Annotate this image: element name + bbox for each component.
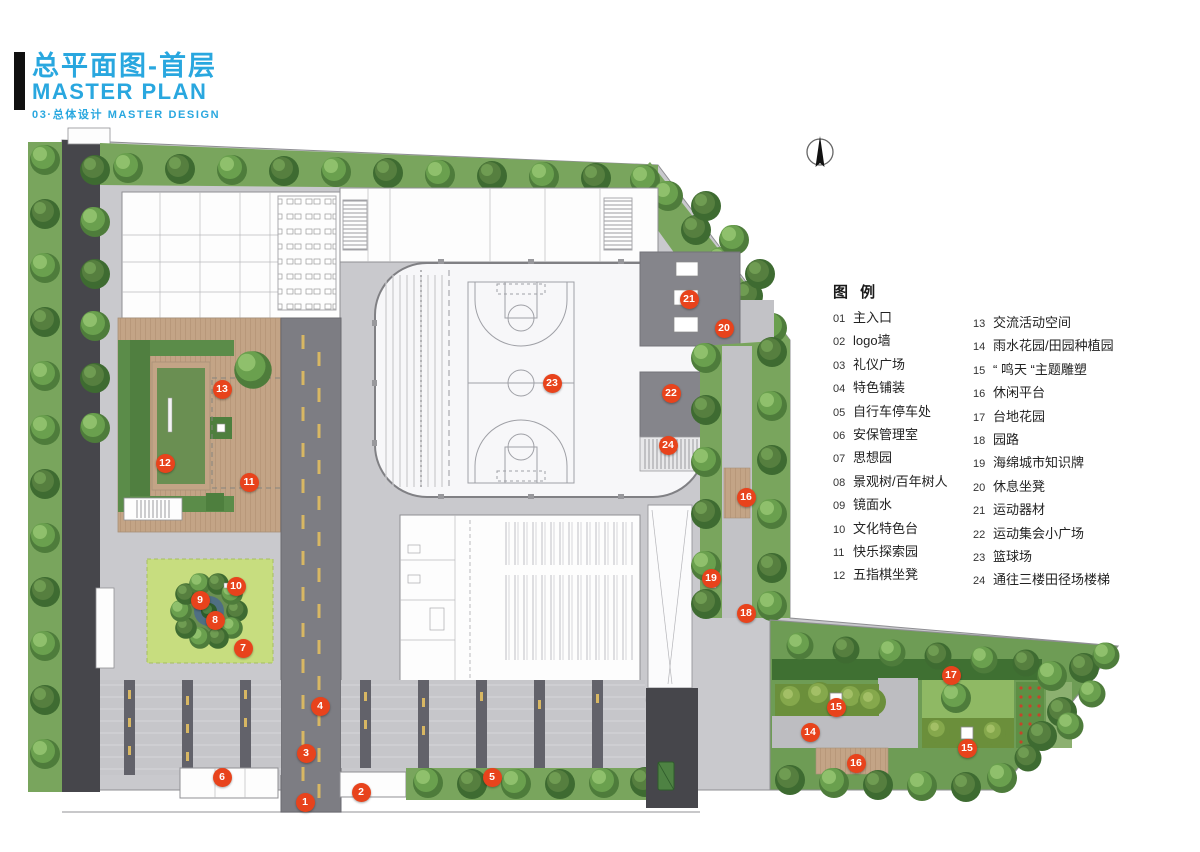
plan-marker-1: 1 [296, 793, 315, 812]
plan-marker-6: 6 [213, 768, 232, 787]
lawn-feature [147, 559, 273, 663]
plan-marker-4: 4 [311, 697, 330, 716]
legend-column-1: 01主入口02logo墙03礼仪广场04特色铺装05自行车停车处06安保管理室0… [833, 307, 973, 593]
plan-marker-22: 22 [662, 384, 681, 403]
plan-marker-5: 5 [483, 768, 502, 787]
legend-item: 08景观树/百年树人 [833, 471, 973, 494]
legend-item: 14雨水花园/田园种植园 [973, 335, 1178, 358]
legend-item: 10文化特色台 [833, 518, 973, 541]
legend-item: 13交流活动空间 [973, 312, 1178, 335]
legend-column-2: 13交流活动空间14雨水花园/田园种植园15“ 鸣天 “主题雕塑16休闲平台17… [973, 307, 1178, 593]
plan-marker-13: 13 [213, 380, 232, 399]
legend-item: 15“ 鸣天 “主题雕塑 [973, 359, 1178, 382]
plan-marker-24: 24 [659, 436, 678, 455]
legend-item: 19海绵城市知识牌 [973, 452, 1178, 475]
plan-marker-11: 11 [240, 473, 259, 492]
legend-item: 11快乐探索园 [833, 541, 973, 564]
page-title: 总平面图-首层 [32, 52, 220, 80]
title-block: 总平面图-首层 MASTER PLAN 03·总体设计 MASTER DESIG… [14, 52, 220, 122]
legend-item: 06安保管理室 [833, 424, 973, 447]
plan-marker-23: 23 [543, 374, 562, 393]
plan-marker-18: 18 [737, 604, 756, 623]
legend-item: 18园路 [973, 429, 1178, 452]
plan-marker-10: 10 [227, 577, 246, 596]
page-subtitle: 03·总体设计 MASTER DESIGN [32, 106, 220, 122]
plan-marker-14: 14 [801, 723, 820, 742]
legend-item: 12五指棋坐凳 [833, 564, 973, 587]
main-road [281, 318, 341, 812]
plan-marker-19: 19 [702, 569, 721, 588]
plan-marker-16: 16 [737, 488, 756, 507]
legend-item: 17台地花园 [973, 406, 1178, 429]
plan-marker-21: 21 [680, 290, 699, 309]
plan-marker-16: 16 [847, 754, 866, 773]
legend: 图 例 01主入口02logo墙03礼仪广场04特色铺装05自行车停车处06安保… [833, 281, 1183, 593]
plan-marker-20: 20 [715, 319, 734, 338]
plan-marker-15: 15 [827, 698, 846, 717]
plan-marker-3: 3 [297, 744, 316, 763]
legend-header: 图 例 [833, 281, 1183, 302]
legend-item: 03礼仪广场 [833, 354, 973, 377]
legend-item: 01主入口 [833, 307, 973, 330]
plan-marker-2: 2 [352, 783, 371, 802]
deck-garden [118, 318, 308, 532]
page-title-en: MASTER PLAN [32, 80, 220, 103]
plan-marker-9: 9 [191, 591, 210, 610]
legend-item: 21运动器材 [973, 499, 1178, 522]
north-arrow-icon [807, 136, 833, 167]
legend-item: 05自行车停车处 [833, 401, 973, 424]
legend-item: 09镜面水 [833, 494, 973, 517]
legend-item: 20休息坐凳 [973, 476, 1178, 499]
legend-item: 22运动集会小广场 [973, 523, 1178, 546]
legend-item: 23篮球场 [973, 546, 1178, 569]
plan-marker-7: 7 [234, 639, 253, 658]
title-accent-bar [14, 52, 25, 110]
legend-item: 04特色铺装 [833, 377, 973, 400]
legend-item: 07思想园 [833, 447, 973, 470]
legend-item: 16休闲平台 [973, 382, 1178, 405]
plan-marker-12: 12 [156, 454, 175, 473]
parking-area [100, 680, 645, 775]
legend-item: 02logo墙 [833, 330, 973, 353]
plan-marker-15: 15 [958, 739, 977, 758]
plan-marker-17: 17 [942, 666, 961, 685]
legend-item: 24通往三楼田径场楼梯 [973, 569, 1178, 592]
terrace-garden [770, 620, 1120, 802]
plan-marker-8: 8 [206, 611, 225, 630]
